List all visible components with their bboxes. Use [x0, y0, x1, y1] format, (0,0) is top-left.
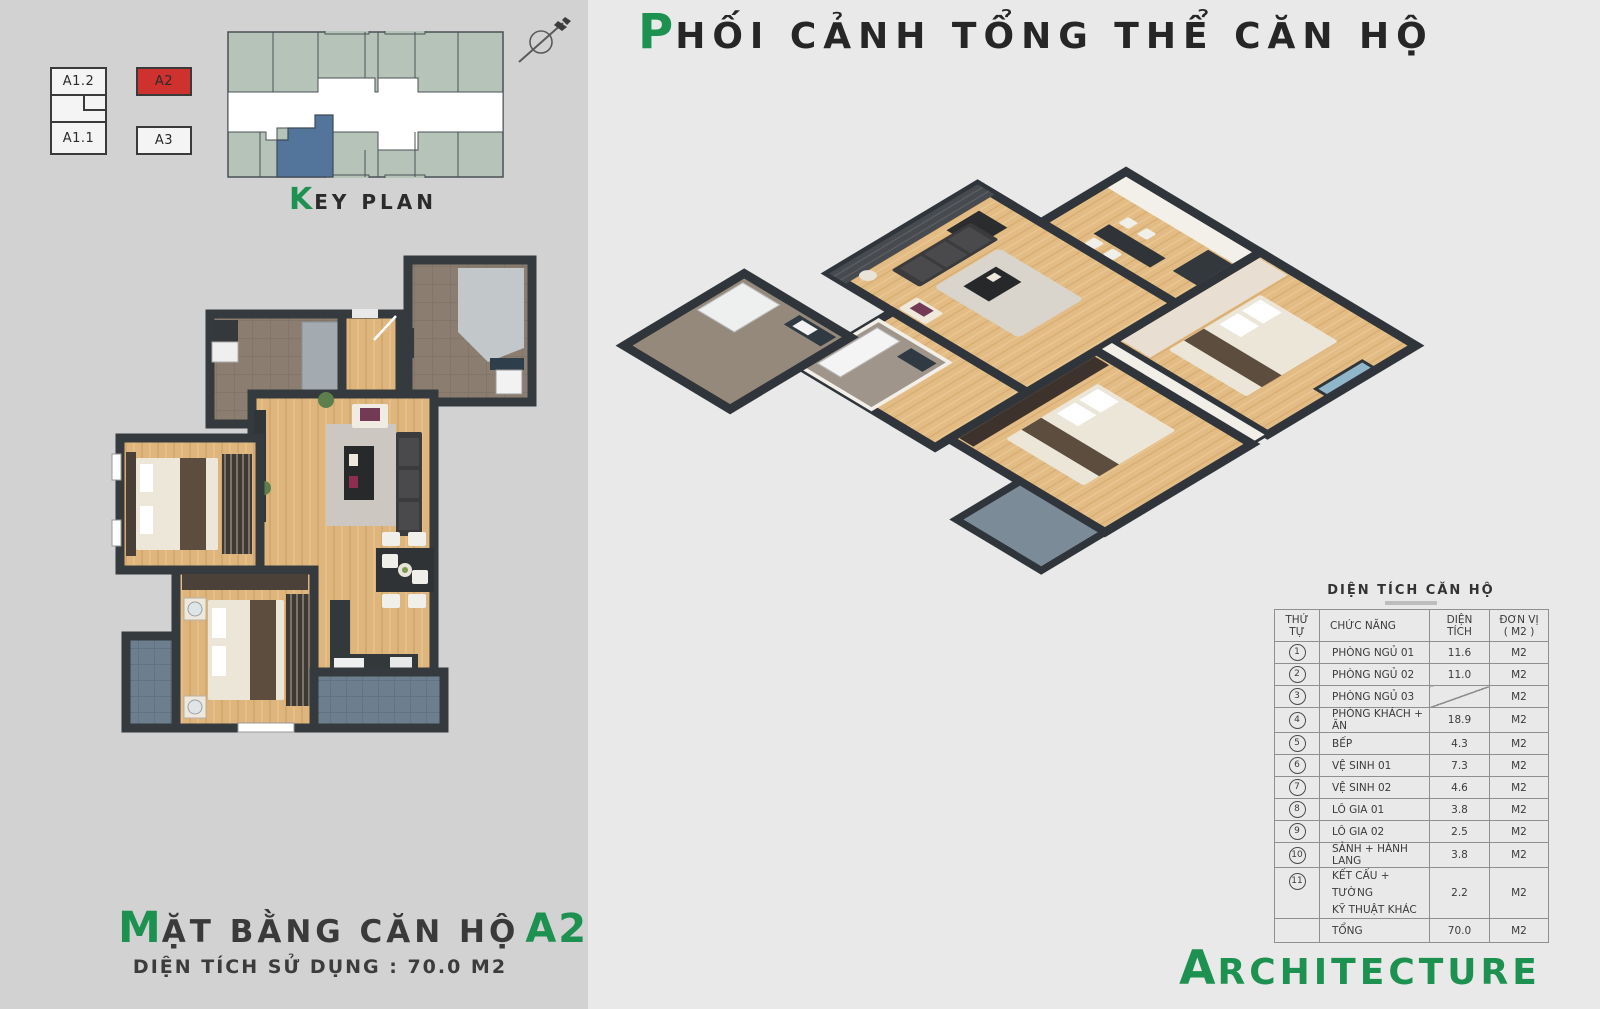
room-unit: M2: [1490, 755, 1549, 777]
row-number-badge: 5: [1289, 735, 1306, 752]
table-row: 7 VỆ SINH 02 4.6 M2: [1275, 777, 1549, 799]
branding-text: ARCHITECTURE: [1150, 941, 1570, 996]
legend-label: A2: [155, 74, 173, 89]
row-number-badge: 2: [1289, 666, 1306, 683]
total-area: 70.0: [1430, 919, 1490, 943]
header-unit: ĐƠN VỊ ( M2 ): [1490, 610, 1549, 642]
room-area: 7.3: [1430, 755, 1490, 777]
room-area: 4.3: [1430, 733, 1490, 755]
room-unit: M2: [1490, 664, 1549, 686]
room-area: 3.8: [1430, 843, 1490, 868]
table-row: 3 PHÒNG NGỦ 03 M2: [1275, 686, 1549, 708]
table-row: 5 BẾP 4.3 M2: [1275, 733, 1549, 755]
title-underline: [1385, 601, 1437, 605]
legend-unit-a2-selected: A2: [136, 67, 192, 96]
key-plan-building: [227, 31, 504, 178]
room-area: 11.0: [1430, 664, 1490, 686]
total-empty-cell: [1275, 919, 1320, 943]
right-panel: PHỐI CẢNH TỔNG THỂ CĂN HỘ: [588, 0, 1600, 1009]
plan-room-utility: [390, 260, 532, 402]
table-row: 4 PHÒNG KHÁCH + ĂN 18.9 M2: [1275, 708, 1549, 733]
table-header-row: THỨ TỰ CHỨC NĂNG DIỆN TÍCH ĐƠN VỊ ( M2 ): [1275, 610, 1549, 642]
room-area-empty: [1430, 686, 1490, 708]
total-label: TỔNG: [1320, 919, 1430, 943]
room-name: SẢNH + HÀNH LANG: [1320, 843, 1430, 868]
room-name: BẾP: [1320, 733, 1430, 755]
header-area: DIỆN TÍCH: [1430, 610, 1490, 642]
header-order: THỨ TỰ: [1275, 610, 1320, 642]
floor-plan-title: MẶT BẰNG CĂN HỘA2-11: [118, 903, 666, 953]
header-function: CHỨC NĂNG: [1320, 610, 1430, 642]
room-area: 2.5: [1430, 821, 1490, 843]
room-unit: M2: [1490, 821, 1549, 843]
floor-plan-2d: [90, 248, 540, 735]
room-name: PHÒNG KHÁCH + ĂN: [1320, 708, 1430, 733]
room-unit: M2: [1490, 868, 1549, 919]
branding-initial: A: [1179, 941, 1217, 996]
row-number-badge: 11: [1289, 873, 1306, 890]
legend-label: A1.1: [63, 131, 95, 146]
caption-initial: K: [289, 182, 314, 217]
table-row: 9 LÔ GIA 02 2.5 M2: [1275, 821, 1549, 843]
north-arrow-icon: [505, 12, 575, 72]
table-row: 6 VỆ SINH 01 7.3 M2: [1275, 755, 1549, 777]
room-name: PHÒNG NGỦ 01: [1320, 642, 1430, 664]
room-unit: M2: [1490, 777, 1549, 799]
room-name: VỆ SINH 02: [1320, 777, 1430, 799]
left-panel: A1.2 A1.1 A2 A3: [0, 0, 588, 1009]
room-unit: M2: [1490, 642, 1549, 664]
table-total-row: TỔNG 70.0 M2: [1275, 919, 1549, 943]
title-initial: M: [118, 903, 162, 953]
room-unit: M2: [1490, 686, 1549, 708]
area-table-block: DIỆN TÍCH CĂN HỘ THỨ TỰ CHỨC NĂNG DIỆN T…: [1274, 583, 1548, 943]
area-table: THỨ TỰ CHỨC NĂNG DIỆN TÍCH ĐƠN VỊ ( M2 )…: [1274, 609, 1549, 943]
room-area: 4.6: [1430, 777, 1490, 799]
room-area: 3.8: [1430, 799, 1490, 821]
room-unit: M2: [1490, 733, 1549, 755]
room-area: 11.6: [1430, 642, 1490, 664]
table-row: 8 LÔ GIA 01 3.8 M2: [1275, 799, 1549, 821]
plan-room-bedroom-1: [112, 438, 260, 570]
legend-unit-middle: [50, 94, 107, 123]
table-row: 11 KẾT CẤU + TƯỜNG KỸ THUẬT KHÁC 2.2 M2: [1275, 868, 1549, 919]
room-name: PHÒNG NGỦ 02: [1320, 664, 1430, 686]
room-name: KẾT CẤU + TƯỜNG KỸ THUẬT KHÁC: [1320, 868, 1430, 919]
room-name: VỆ SINH 01: [1320, 755, 1430, 777]
perspective-title: PHỐI CẢNH TỔNG THỂ CĂN HỘ: [638, 4, 1434, 60]
room-name: PHÒNG NGỦ 03: [1320, 686, 1430, 708]
row-number-badge: 6: [1289, 757, 1306, 774]
title-initial: P: [638, 4, 675, 60]
table-row: 10 SẢNH + HÀNH LANG 3.8 M2: [1275, 843, 1549, 868]
legend-unit-a12: A1.2: [50, 67, 107, 96]
row-number-badge: 8: [1289, 801, 1306, 818]
table-row: 2 PHÒNG NGỦ 02 11.0 M2: [1275, 664, 1549, 686]
floor-plan-subtitle: DIỆN TÍCH SỬ DỤNG : 70.0 M2: [120, 956, 520, 978]
row-number-badge: 10: [1289, 847, 1306, 864]
legend-label: A3: [155, 133, 173, 148]
row-number-badge: 1: [1289, 644, 1306, 661]
room-name: LÔ GIA 01: [1320, 799, 1430, 821]
legend-notch: [83, 94, 107, 111]
room-unit: M2: [1490, 708, 1549, 733]
row-number-badge: 7: [1289, 779, 1306, 796]
room-unit: M2: [1490, 799, 1549, 821]
row-number-badge: 4: [1289, 712, 1306, 729]
legend-unit-a3: A3: [136, 126, 192, 155]
plan-room-bedroom-2: [176, 570, 314, 732]
legend-unit-a11: A1.1: [50, 121, 107, 155]
plan-balcony-1: [126, 636, 176, 728]
iso-bathroom: [624, 273, 850, 409]
total-unit: M2: [1490, 919, 1549, 943]
key-plan-caption: KEY PLAN: [258, 182, 468, 217]
legend-label: A1.2: [63, 74, 95, 89]
plan-balcony-2: [314, 672, 444, 728]
room-name: LÔ GIA 02: [1320, 821, 1430, 843]
plan-entry: [342, 309, 400, 396]
area-table-title: DIỆN TÍCH CĂN HỘ: [1274, 583, 1548, 598]
row-number-badge: 3: [1289, 688, 1306, 705]
room-area: 2.2: [1430, 868, 1490, 919]
row-number-badge: 9: [1289, 823, 1306, 840]
room-area: 18.9: [1430, 708, 1490, 733]
table-row: 1 PHÒNG NGỦ 01 11.6 M2: [1275, 642, 1549, 664]
room-unit: M2: [1490, 843, 1549, 868]
iso-3d-render: [600, 80, 1440, 670]
